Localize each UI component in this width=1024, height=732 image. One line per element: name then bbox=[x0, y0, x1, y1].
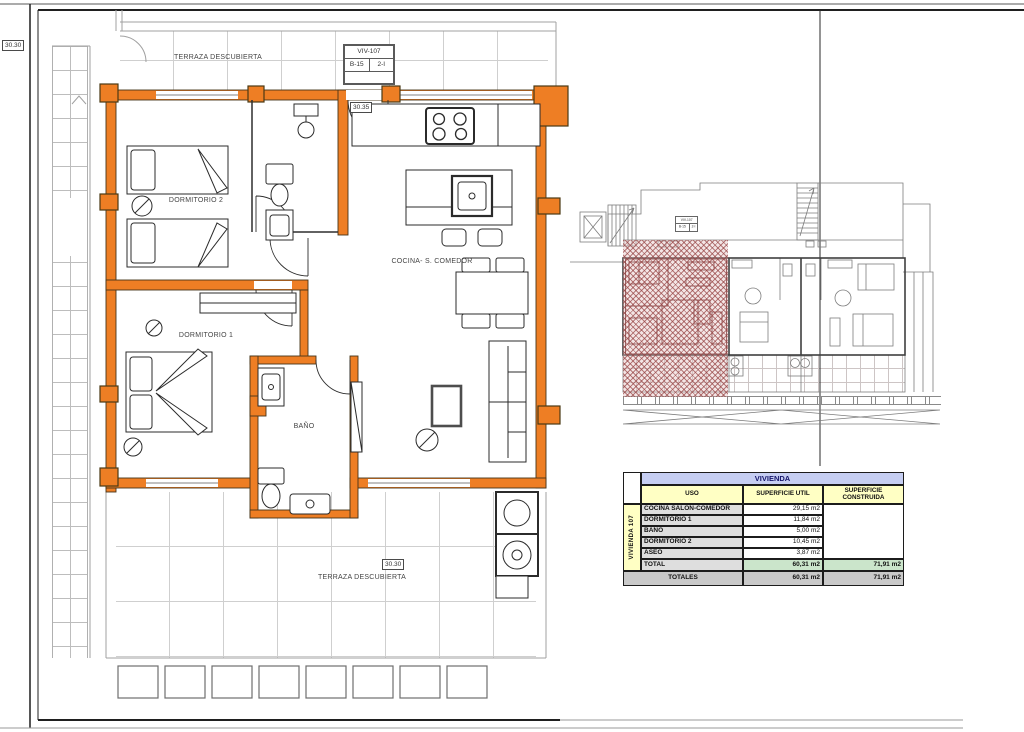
table-total-construida: 71,91 m2 bbox=[823, 559, 904, 571]
table-header-superficie-util: SUPERFICIE UTIL bbox=[743, 485, 823, 504]
dim-box-top: 30.35 bbox=[350, 102, 372, 113]
table-totales-util: 60,31 m2 bbox=[743, 571, 823, 586]
room-label-dormitorio-1: DORMITORIO 1 bbox=[179, 332, 233, 339]
table-corner-blank bbox=[623, 472, 641, 504]
title-block-unit: VIV-107 bbox=[345, 46, 393, 59]
table-row: BAÑO bbox=[641, 526, 743, 537]
room-label-cocina-comedor: COCINA- S. COMEDOR bbox=[391, 258, 472, 265]
area-table: VIVIENDA USO SUPERFICIE UTIL SUPERFICIE … bbox=[623, 472, 905, 586]
table-value: 29,15 m2 bbox=[743, 504, 823, 515]
table-value: 10,45 m2 bbox=[743, 537, 823, 548]
table-value: 3,87 m2 bbox=[743, 548, 823, 559]
table-construida-merged bbox=[823, 504, 904, 559]
table-value: 11,84 m2 bbox=[743, 515, 823, 526]
table-title: VIVIENDA bbox=[641, 472, 904, 485]
plan-linework bbox=[0, 0, 1024, 732]
table-value: 5,00 m2 bbox=[743, 526, 823, 537]
room-label-terrace-top: TERRAZA DESCUBIERTA bbox=[174, 54, 262, 61]
table-row: ASEO bbox=[641, 548, 743, 559]
title-block: VIV-107 B-15 2-I bbox=[343, 44, 395, 85]
overview-title-block: VIV-107 B-15 2-I bbox=[675, 216, 698, 232]
overview-unit-ref: VIV-107 bbox=[681, 219, 693, 223]
table-total-label: TOTAL bbox=[641, 559, 743, 571]
room-label-bano: BAÑO bbox=[294, 423, 315, 430]
table-header-uso: USO bbox=[641, 485, 743, 504]
table-row: COCINA SALÓN-COMEDOR bbox=[641, 504, 743, 515]
table-row-group: VIVIENDA 107 bbox=[623, 504, 641, 571]
table-total-util: 60,31 m2 bbox=[743, 559, 823, 571]
room-label-terrace-bottom: TERRAZA DESCUBIERTA bbox=[318, 574, 406, 581]
table-row: DORMITORIO 2 bbox=[641, 537, 743, 548]
drawing-sheet: 30.30 30.35 30.30 VIV-107 B-15 2-I VIV-1… bbox=[0, 0, 1024, 732]
table-header-superficie-construida: SUPERFICIE CONSTRUIDA bbox=[823, 485, 904, 504]
table-totales-construida: 71,91 m2 bbox=[823, 571, 904, 586]
table-totales-label: TOTALES bbox=[623, 571, 743, 586]
overview-balustrade bbox=[623, 396, 941, 405]
terrace-balustrade bbox=[118, 666, 487, 698]
title-block-block: B-15 bbox=[345, 59, 370, 71]
aseo-walls bbox=[252, 100, 338, 232]
overview-highlighted-unit bbox=[625, 259, 727, 354]
furniture bbox=[124, 104, 540, 598]
table-row: DORMITORIO 1 bbox=[641, 515, 743, 526]
title-block-type: 2-I bbox=[370, 59, 394, 71]
dim-box-bottom: 30.30 bbox=[382, 559, 404, 570]
ref-box-sheet: 30.30 bbox=[2, 40, 24, 51]
room-label-dormitorio-2: DORMITORIO 2 bbox=[169, 197, 223, 204]
